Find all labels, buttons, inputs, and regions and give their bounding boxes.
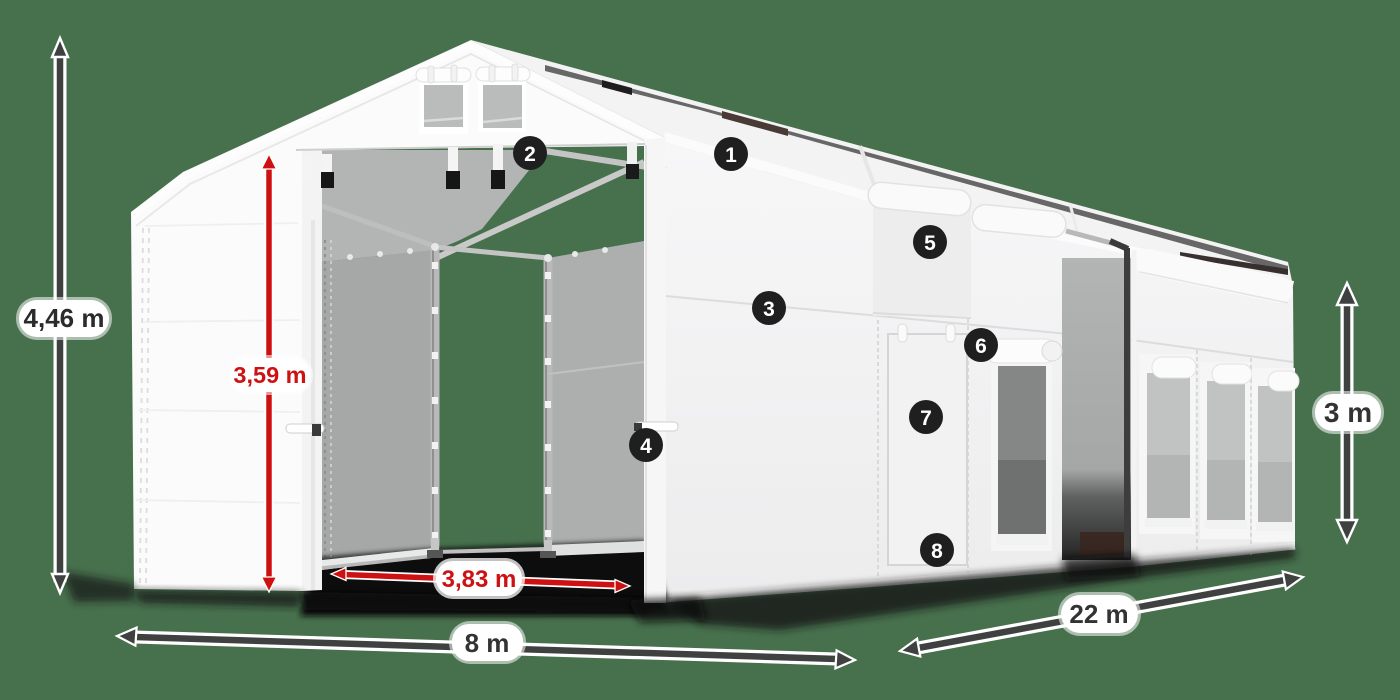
- svg-text:22 m: 22 m: [1069, 599, 1128, 629]
- svg-text:5: 5: [924, 232, 936, 255]
- svg-text:8 m: 8 m: [465, 628, 510, 658]
- svg-text:8: 8: [931, 540, 943, 563]
- svg-text:3: 3: [763, 298, 775, 321]
- svg-text:7: 7: [920, 407, 932, 430]
- svg-text:6: 6: [975, 335, 987, 358]
- svg-text:2: 2: [524, 143, 536, 166]
- svg-text:4,46 m: 4,46 m: [24, 303, 105, 333]
- svg-text:3 m: 3 m: [1324, 397, 1372, 428]
- svg-text:3,59 m: 3,59 m: [233, 362, 306, 388]
- svg-text:3,83 m: 3,83 m: [442, 566, 517, 593]
- svg-text:1: 1: [725, 144, 737, 167]
- svg-text:4: 4: [640, 435, 652, 458]
